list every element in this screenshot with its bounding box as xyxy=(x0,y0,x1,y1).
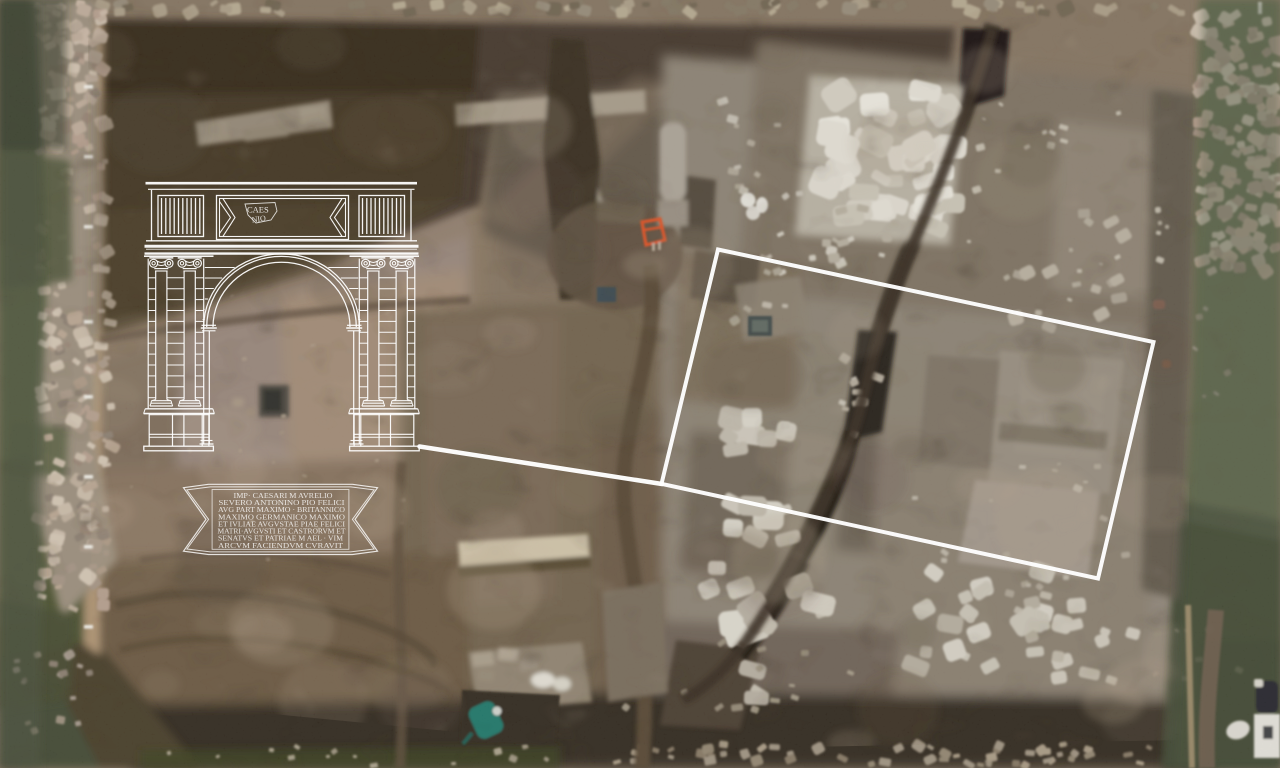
svg-text:IMP· CAESARI M AVRELIO: IMP· CAESARI M AVRELIO xyxy=(234,493,333,500)
svg-text:ARCVM FACIENDVM CVRAV: ARCVM FACIENDVM CVRAVIT xyxy=(218,543,344,550)
svg-text:MAXIMO GERMANICO MAXIMO: MAXIMO GERMANICO MAXIMO xyxy=(218,514,345,521)
svg-text:ET IVLIAE AVGVSTAE PIAE FE: ET IVLIAE AVGVSTAE PIAE FELICI xyxy=(218,521,346,528)
svg-text:CAES: CAES xyxy=(247,205,269,215)
svg-text:MATRI·AVGVSTI ET CASTRORVM: MATRI·AVGVSTI ET CASTRORVM ET xyxy=(218,529,347,536)
svg-text:SENATVS ET PATRIAE M AEL ·: SENATVS ET PATRIAE M AEL · VIM xyxy=(218,536,343,543)
svg-text:SEVERO ANTONINO PIO FELICI: SEVERO ANTONINO PIO FELICI xyxy=(219,500,346,507)
svg-text:AVG PART MAXIMO · BRITANNICO: AVG PART MAXIMO · BRITANNICO xyxy=(218,507,345,514)
